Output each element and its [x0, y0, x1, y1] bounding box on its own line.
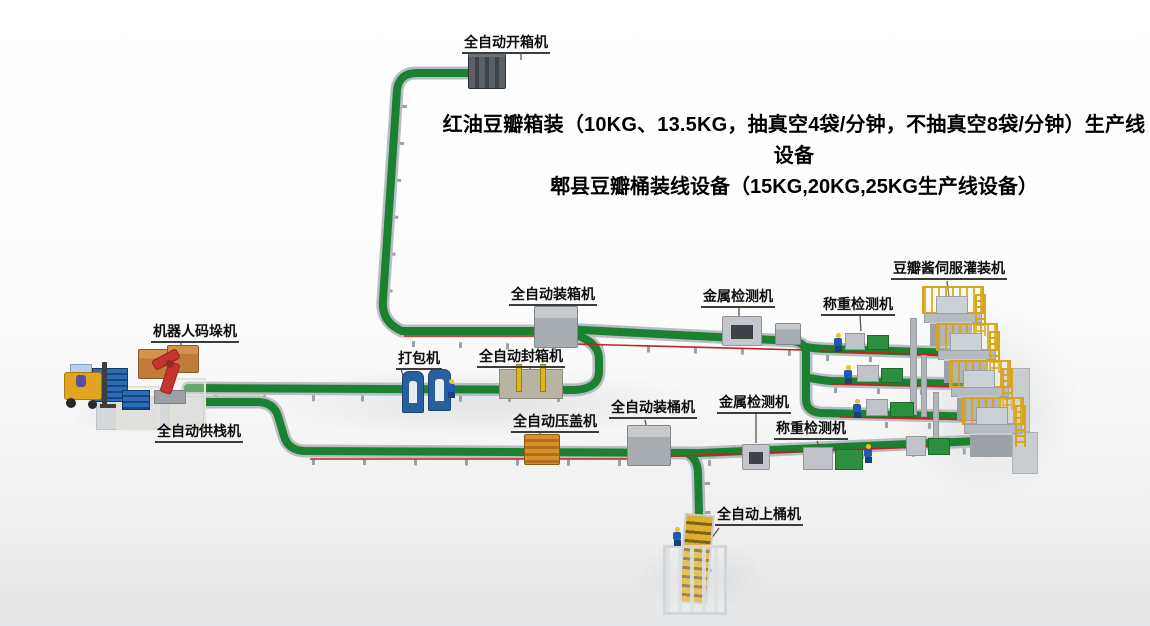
worker-legs — [448, 392, 455, 398]
filler-head — [936, 296, 968, 314]
support-column — [910, 318, 917, 415]
forklift-mast — [102, 362, 107, 408]
checkweigher-belt — [867, 335, 889, 350]
sealer-post — [516, 364, 522, 392]
sealer-post — [540, 364, 546, 392]
case-packer-machine — [534, 306, 578, 348]
worker-body — [673, 532, 681, 540]
filler-head — [976, 407, 1008, 425]
label-carton-sealer: 全自动封箱机 — [477, 348, 565, 368]
label-checkweigher-top: 称重检测机 — [821, 296, 895, 316]
barrel-loader-frame — [663, 545, 727, 615]
worker-legs — [854, 412, 861, 418]
checkweigher-belt — [928, 438, 950, 455]
forklift-wheel — [88, 400, 97, 409]
label-robot-palletizer: 机器人码垛机 — [151, 323, 239, 343]
filler-head — [963, 370, 995, 388]
strapper-arch — [409, 381, 417, 403]
worker-legs — [674, 540, 681, 546]
metal-detector-top-machine — [722, 316, 762, 346]
label-barrel-loader: 全自动上桶机 — [715, 506, 803, 526]
worker — [672, 527, 682, 546]
carton-opener-machine — [468, 53, 506, 89]
worker-body — [844, 370, 852, 378]
filling-station-4 — [960, 397, 1026, 477]
checkweigher-belt — [881, 368, 903, 383]
worker-body — [447, 384, 455, 392]
label-metal-detector-bottom: 金属检测机 — [717, 394, 791, 414]
label-pallet-feeder: 全自动供栈机 — [155, 423, 243, 443]
metal-detector-bottom-machine — [742, 444, 770, 470]
strapper-arch — [435, 379, 443, 401]
worker — [843, 365, 853, 384]
checkweigher-table — [857, 365, 879, 382]
checkweigher-bottom-belt — [835, 449, 863, 470]
forklift-driver — [76, 375, 86, 387]
robot-joint — [166, 360, 174, 368]
diagram-title: 红油豆瓣箱装（10KG、13.5KG，抽真空4袋/分钟，不抽真空8袋/分钟）生产… — [438, 110, 1150, 203]
production-line-diagram: 红油豆瓣箱装（10KG、13.5KG，抽真空4袋/分钟，不抽真空8袋/分钟）生产… — [0, 0, 1150, 626]
worker-legs — [865, 457, 872, 463]
detector-tunnel — [731, 325, 752, 339]
worker — [833, 333, 843, 352]
worker — [446, 379, 456, 398]
worker-legs — [835, 346, 842, 352]
title-line-1: 红油豆瓣箱装（10KG、13.5KG，抽真空4袋/分钟，不抽真空8袋/分钟）生产… — [438, 110, 1150, 172]
worker — [852, 399, 862, 418]
platform-ladder — [1015, 405, 1026, 447]
checkweigher-belt — [890, 402, 914, 417]
checkweigher-bottom-table — [803, 447, 833, 470]
strapping-machine-1 — [402, 371, 424, 413]
detector-tunnel — [749, 452, 764, 464]
carton-sealer-machine — [499, 369, 563, 399]
filler-head — [950, 333, 982, 351]
label-case-packer: 全自动装箱机 — [509, 286, 597, 306]
label-capping-machine: 全自动压盖机 — [511, 413, 599, 433]
worker-body — [853, 404, 861, 412]
worker — [863, 444, 873, 463]
forklift — [62, 362, 118, 416]
worker-body — [864, 449, 872, 457]
title-line-2: 郫县豆瓣桶装线设备（15KG,20KG,25KG生产线设备） — [438, 172, 1150, 203]
platform-pedestal — [970, 433, 1012, 457]
checkweigher-table — [906, 436, 926, 456]
label-metal-detector-top: 金属检测机 — [701, 288, 775, 308]
junction-machine — [775, 323, 801, 345]
forklift-fork — [100, 404, 116, 408]
forklift-wheel — [66, 398, 76, 408]
palletizer-robot — [146, 352, 194, 404]
checkweigher-table — [866, 399, 888, 416]
worker-legs — [845, 378, 852, 384]
capping-machine — [524, 434, 560, 465]
label-carton-opener: 全自动开箱机 — [462, 34, 550, 54]
label-checkweigher-bottom: 称重检测机 — [774, 420, 848, 440]
label-servo-filler: 豆瓣酱伺服灌装机 — [891, 260, 1007, 280]
worker-body — [834, 338, 842, 346]
label-strapping-machine: 打包机 — [396, 350, 442, 370]
checkweigher-table — [845, 333, 865, 350]
label-barrel-packer: 全自动装桶机 — [609, 399, 697, 419]
barrel-packer-machine — [627, 425, 671, 466]
